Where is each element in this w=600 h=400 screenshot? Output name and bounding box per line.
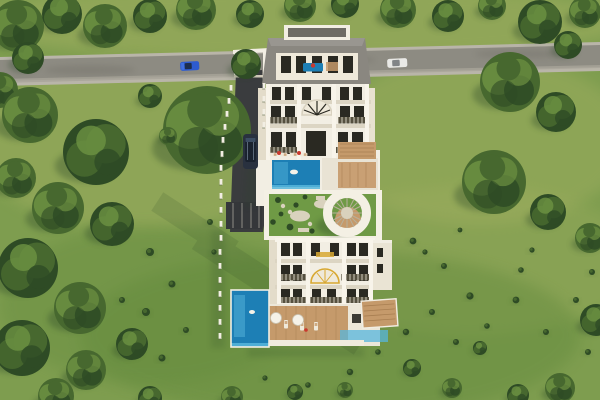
blue-car bbox=[180, 61, 199, 71]
balcony-railing bbox=[338, 117, 367, 124]
pool-float bbox=[249, 310, 255, 314]
red-towel bbox=[304, 328, 308, 332]
pool-reflection bbox=[234, 295, 245, 337]
lower-pool bbox=[231, 290, 269, 347]
balcony-railing bbox=[279, 297, 371, 303]
parapet-inner-roof bbox=[288, 28, 346, 37]
balcony-slab bbox=[275, 259, 375, 263]
balcony-railing bbox=[268, 117, 298, 124]
pool-reflection bbox=[274, 162, 288, 184]
balcony-slab bbox=[264, 124, 371, 128]
bbq bbox=[352, 314, 361, 323]
umbrella bbox=[293, 315, 304, 326]
gazebo-hub bbox=[341, 207, 353, 219]
right-wing bbox=[373, 240, 392, 290]
balcony-railing bbox=[268, 147, 300, 153]
boundary-wall bbox=[262, 340, 364, 346]
cornice bbox=[275, 238, 375, 242]
lower-terrace bbox=[262, 299, 398, 346]
lower-pergola bbox=[361, 299, 398, 328]
roof-deck bbox=[326, 62, 338, 71]
upper-villa bbox=[256, 25, 380, 206]
gold-plaque bbox=[316, 252, 334, 257]
upper-pergola bbox=[338, 142, 376, 188]
balcony-railing bbox=[279, 274, 309, 281]
aerial-render bbox=[0, 0, 600, 400]
scene-canvas bbox=[0, 0, 600, 400]
dark-suv bbox=[243, 134, 258, 169]
pool-float bbox=[290, 170, 298, 175]
red-umbrella bbox=[311, 63, 315, 67]
infinity-edge bbox=[272, 185, 320, 189]
white-car bbox=[387, 58, 407, 68]
umbrella bbox=[271, 313, 282, 324]
balcony-slab bbox=[275, 285, 375, 289]
